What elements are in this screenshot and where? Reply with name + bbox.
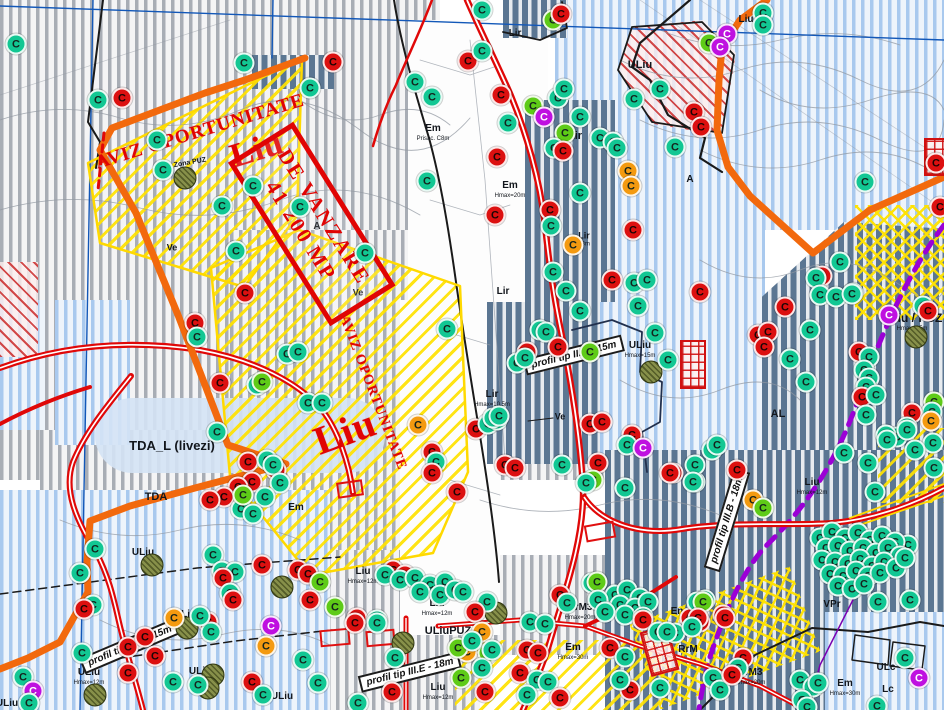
zone-label: LiuHmax=12m xyxy=(423,683,454,701)
zone-label-text: ULiu xyxy=(628,60,652,72)
zone-label-sub: Hmax=30m xyxy=(558,655,589,661)
map-marker[interactable]: C xyxy=(834,443,855,464)
map-marker[interactable]: C xyxy=(451,668,472,689)
zone-label-text: Lc xyxy=(882,685,894,696)
map-marker[interactable]: C xyxy=(382,682,403,703)
map-marker[interactable]: C xyxy=(243,176,264,197)
zone-label: Lir xyxy=(509,29,522,40)
map-marker[interactable]: C xyxy=(909,668,930,689)
zone-label-text: Lir xyxy=(509,29,522,40)
map-marker[interactable]: C xyxy=(491,85,512,106)
map-marker[interactable]: C xyxy=(293,650,314,671)
map-marker[interactable]: C xyxy=(665,137,686,158)
map-marker[interactable]: C xyxy=(553,141,574,162)
map-marker[interactable]: C xyxy=(570,107,591,128)
map-marker[interactable]: C xyxy=(288,342,309,363)
map-marker[interactable]: C xyxy=(223,590,244,611)
map-marker[interactable]: C xyxy=(308,673,329,694)
map-marker[interactable]: C xyxy=(633,438,654,459)
map-marker[interactable]: C xyxy=(489,406,510,427)
map-marker[interactable]: C xyxy=(235,283,256,304)
map-marker[interactable]: C xyxy=(118,663,139,684)
map-marker[interactable]: C xyxy=(877,430,898,451)
map-marker[interactable]: C xyxy=(312,393,333,414)
map-marker[interactable]: C xyxy=(727,460,748,481)
map-marker[interactable]: C xyxy=(682,617,703,638)
map-marker[interactable]: C xyxy=(233,485,254,506)
zone-label-sub: Hmax=15m xyxy=(625,353,656,359)
map-marker[interactable]: C xyxy=(300,590,321,611)
map-marker[interactable]: C xyxy=(548,337,569,358)
map-marker[interactable]: C xyxy=(135,627,156,648)
zone-label-text: VPr xyxy=(823,600,840,611)
zone-label-text: Liu xyxy=(797,478,828,489)
map-marker[interactable]: C xyxy=(921,411,942,432)
map-marker[interactable]: C xyxy=(437,319,458,340)
map-marker[interactable]: C xyxy=(261,616,282,637)
map-marker[interactable]: C xyxy=(650,79,671,100)
zone-label-text: Liu xyxy=(423,683,454,694)
map-marker[interactable]: C xyxy=(238,452,259,473)
zone-label: Ve xyxy=(167,243,178,252)
map-marker[interactable]: C xyxy=(345,613,366,634)
zone-label-text: Lir xyxy=(497,287,510,298)
map-marker[interactable]: C xyxy=(856,405,877,426)
map-marker[interactable]: C xyxy=(624,89,645,110)
zone-label: A xyxy=(686,175,693,186)
map-marker[interactable]: C xyxy=(505,458,526,479)
map-marker[interactable]: C xyxy=(475,682,496,703)
map-marker[interactable]: C xyxy=(650,678,671,699)
zone-label-sub: Hmax=20m xyxy=(495,193,526,199)
zone-label: ULc xyxy=(877,663,896,674)
tree-symbol xyxy=(84,684,107,707)
map-marker[interactable]: C xyxy=(923,433,944,454)
map-marker[interactable]: C xyxy=(556,281,577,302)
zone-label: Lir xyxy=(497,287,510,298)
map-marker[interactable]: C xyxy=(164,608,185,629)
zone-label-text: ULiu xyxy=(271,692,293,703)
map-marker[interactable]: C xyxy=(163,672,184,693)
zone-label-text: AL xyxy=(771,409,786,421)
zone-label-text: Ve xyxy=(555,412,566,421)
zone-label: LirHmax=10.5m xyxy=(474,390,510,408)
map-marker[interactable]: C xyxy=(637,270,658,291)
map-marker[interactable]: C xyxy=(754,337,775,358)
zone-label-text: TDA_L (livezi) xyxy=(129,439,215,453)
map-marker[interactable]: C xyxy=(453,582,474,603)
map-marker[interactable]: C xyxy=(367,613,388,634)
map-marker[interactable]: C xyxy=(576,473,597,494)
map-marker[interactable]: C xyxy=(905,440,926,461)
map-marker[interactable]: C xyxy=(85,539,106,560)
zone-label: AL xyxy=(771,409,786,421)
map-marker[interactable]: C xyxy=(325,597,346,618)
zone-label: ULiu xyxy=(628,60,652,72)
map-marker[interactable]: C xyxy=(187,327,208,348)
map-marker[interactable]: C xyxy=(879,305,900,326)
map-marker[interactable]: C xyxy=(690,282,711,303)
map-marker[interactable]: C xyxy=(867,696,888,710)
map-marker[interactable]: C xyxy=(528,643,549,664)
map-marker[interactable]: C xyxy=(190,606,211,627)
zone-label: LiuHmax=12m xyxy=(797,478,828,496)
zone-label: Em xyxy=(288,503,304,514)
map-marker[interactable]: C xyxy=(72,643,93,664)
building-grid xyxy=(680,340,706,389)
map-marker[interactable]: C xyxy=(543,262,564,283)
map-marker[interactable]: C xyxy=(602,270,623,291)
map-marker[interactable]: C xyxy=(895,548,916,569)
tree-symbol xyxy=(905,326,928,349)
zone-label: EmHmax=30m xyxy=(558,643,589,661)
zone-label-text: A xyxy=(686,175,693,186)
zone-label: ULiuHmax=15m xyxy=(625,341,656,359)
map-marker[interactable]: C xyxy=(462,631,483,652)
map-marker[interactable]: C xyxy=(868,592,889,613)
map-marker[interactable]: C xyxy=(188,675,209,696)
map-marker[interactable]: C xyxy=(615,647,636,668)
zone-label: TDA_L (livezi) xyxy=(129,439,215,453)
zone-label-sub: Hmax=20m xyxy=(565,615,596,621)
map-marker[interactable]: C xyxy=(796,372,817,393)
map-marker[interactable]: C xyxy=(485,205,506,226)
map-marker[interactable]: C xyxy=(472,41,493,62)
map-marker[interactable]: C xyxy=(607,138,628,159)
map-marker[interactable]: C xyxy=(563,235,584,256)
map-marker[interactable]: C xyxy=(610,670,631,691)
map-marker[interactable]: C xyxy=(628,296,649,317)
map-marker[interactable]: C xyxy=(385,648,406,669)
map-marker[interactable]: C xyxy=(70,563,91,584)
zone-label-sub: Hmax=12m xyxy=(797,490,828,496)
map-marker[interactable]: C xyxy=(226,241,247,262)
map-marker[interactable]: C xyxy=(855,172,876,193)
map-marker[interactable]: C xyxy=(683,472,704,493)
map-marker[interactable]: C xyxy=(210,373,231,394)
map-marker[interactable]: C xyxy=(147,130,168,151)
map-marker[interactable]: C xyxy=(145,646,166,667)
zone-label-sub: Hmax=12m xyxy=(423,695,454,701)
map-marker[interactable]: C xyxy=(212,196,233,217)
zone-redhatch-left xyxy=(0,262,38,357)
zone-label: EmHmax=30m xyxy=(830,679,861,697)
map-marker[interactable]: C xyxy=(570,301,591,322)
map-marker[interactable]: C xyxy=(865,482,886,503)
zone-label-text: RrM xyxy=(678,645,697,656)
map-marker[interactable]: C xyxy=(482,640,503,661)
zone-label: VPr xyxy=(823,600,840,611)
zone-label: Lc xyxy=(882,685,894,696)
map-marker[interactable]: C xyxy=(615,478,636,499)
map-marker[interactable]: C xyxy=(253,685,274,706)
map-marker[interactable]: C xyxy=(660,463,681,484)
map-marker[interactable]: C xyxy=(487,147,508,168)
zone-label-text: TDA xyxy=(145,492,168,504)
map-marker[interactable]: C xyxy=(355,243,376,264)
map-marker[interactable]: C xyxy=(422,463,443,484)
map-marker[interactable]: C xyxy=(323,52,344,73)
map-marker[interactable]: C xyxy=(621,176,642,197)
map-marker[interactable]: C xyxy=(200,490,221,511)
map-marker[interactable]: C xyxy=(858,453,879,474)
map-marker[interactable]: C xyxy=(290,197,311,218)
map-marker[interactable]: C xyxy=(472,658,493,679)
map-marker[interactable]: C xyxy=(422,87,443,108)
map-marker[interactable]: C xyxy=(580,342,601,363)
map-marker[interactable]: C xyxy=(707,435,728,456)
map-marker[interactable]: C xyxy=(657,622,678,643)
map-marker[interactable]: C xyxy=(808,673,829,694)
zone-label-text: Liu xyxy=(739,15,754,26)
map-marker[interactable]: C xyxy=(550,688,571,709)
map-marker[interactable]: C xyxy=(753,15,774,36)
map-marker[interactable]: C xyxy=(854,574,875,595)
map-marker[interactable]: C xyxy=(753,498,774,519)
map-marker[interactable]: C xyxy=(88,90,109,111)
map-marker[interactable]: C xyxy=(645,323,666,344)
map-marker[interactable]: C xyxy=(897,420,918,441)
building-outline xyxy=(319,628,350,648)
map-marker[interactable]: C xyxy=(252,372,273,393)
map-marker[interactable]: C xyxy=(592,412,613,433)
zone-label-text: Em xyxy=(288,503,304,514)
map-marker[interactable]: C xyxy=(472,0,493,21)
zone-label-text: ULiu xyxy=(0,699,18,710)
map-marker[interactable]: C xyxy=(552,455,573,476)
map-marker[interactable]: C xyxy=(498,113,519,134)
map-marker[interactable]: C xyxy=(930,197,944,218)
map-marker[interactable]: C xyxy=(19,693,40,710)
map-marker[interactable]: C xyxy=(842,284,863,305)
zone-label-sub: Hmax=12m xyxy=(422,611,453,617)
map-marker[interactable]: C xyxy=(691,117,712,138)
zone-label: TDA xyxy=(145,492,168,504)
tree-symbol xyxy=(174,167,197,190)
zone-label-text: Ve xyxy=(167,243,178,252)
map-marker[interactable]: C xyxy=(797,697,818,710)
map-marker[interactable]: C xyxy=(410,582,431,603)
map-marker[interactable]: C xyxy=(900,590,921,611)
map-marker[interactable]: C xyxy=(554,79,575,100)
map-marker[interactable]: C xyxy=(256,636,277,657)
zone-label: RrM xyxy=(678,645,697,656)
map-canvas[interactable]: AVIZ OPORTUNITATELiuZona PUZAVIZ OPORTUN… xyxy=(0,0,944,710)
map-marker[interactable]: C xyxy=(515,348,536,369)
map-marker[interactable]: C xyxy=(465,602,486,623)
map-marker[interactable]: C xyxy=(447,482,468,503)
map-marker[interactable]: C xyxy=(595,602,616,623)
zone-label: Ve xyxy=(555,412,566,421)
map-marker[interactable]: C xyxy=(517,685,538,706)
map-marker[interactable]: C xyxy=(830,252,851,273)
map-marker[interactable]: C xyxy=(252,555,273,576)
map-marker[interactable]: C xyxy=(541,216,562,237)
map-marker[interactable]: C xyxy=(74,599,95,620)
map-marker[interactable]: C xyxy=(722,665,743,686)
map-marker[interactable]: C xyxy=(535,614,556,635)
tree-symbol xyxy=(271,576,294,599)
zone-label-text: Lir xyxy=(474,390,510,401)
map-marker[interactable]: C xyxy=(710,37,731,58)
map-marker[interactable]: C xyxy=(895,648,916,669)
map-marker[interactable]: C xyxy=(775,297,796,318)
map-marker[interactable]: C xyxy=(243,504,264,525)
map-marker[interactable]: C xyxy=(534,107,555,128)
zone-label: EmPrisac. C8m xyxy=(417,124,450,142)
map-marker[interactable]: C xyxy=(234,53,255,74)
map-marker[interactable]: C xyxy=(924,458,944,479)
map-marker[interactable]: C xyxy=(405,72,426,93)
map-marker[interactable]: C xyxy=(926,153,944,174)
zone-label-text: Em xyxy=(495,181,526,192)
zone-label-text: Em xyxy=(830,679,861,690)
map-marker[interactable]: C xyxy=(866,385,887,406)
zone-label-sub: Hmax=30m xyxy=(830,691,861,697)
map-marker[interactable]: C xyxy=(6,34,27,55)
tree-symbol xyxy=(141,554,164,577)
map-marker[interactable]: C xyxy=(348,693,369,710)
map-marker[interactable]: C xyxy=(300,78,321,99)
zone-label-text: Em xyxy=(558,643,589,654)
map-marker[interactable]: C xyxy=(658,350,679,371)
zone-label-text: Em xyxy=(417,124,450,135)
zone-label: EmHmax=20m xyxy=(495,181,526,199)
map-marker[interactable]: C xyxy=(918,301,939,322)
zone-label: ULiu xyxy=(271,692,293,703)
zone-label-text: ULc xyxy=(877,663,896,674)
map-marker[interactable]: C xyxy=(715,608,736,629)
zone-label-sub: Hmax=12m xyxy=(348,579,379,585)
map-marker[interactable]: C xyxy=(570,183,591,204)
zone-label-sub: Prisac. C8m xyxy=(417,136,450,142)
map-marker[interactable]: C xyxy=(557,593,578,614)
map-marker[interactable]: C xyxy=(551,4,572,25)
map-marker[interactable]: C xyxy=(800,320,821,341)
map-marker[interactable]: C xyxy=(153,160,174,181)
zone-label: Liu xyxy=(739,15,754,26)
map-marker[interactable]: C xyxy=(623,220,644,241)
map-marker[interactable]: C xyxy=(112,88,133,109)
map-marker[interactable]: C xyxy=(207,422,228,443)
zone-label: ULiu xyxy=(0,699,18,710)
map-marker[interactable]: C xyxy=(408,415,429,436)
map-marker[interactable]: C xyxy=(417,171,438,192)
map-marker[interactable]: C xyxy=(780,349,801,370)
